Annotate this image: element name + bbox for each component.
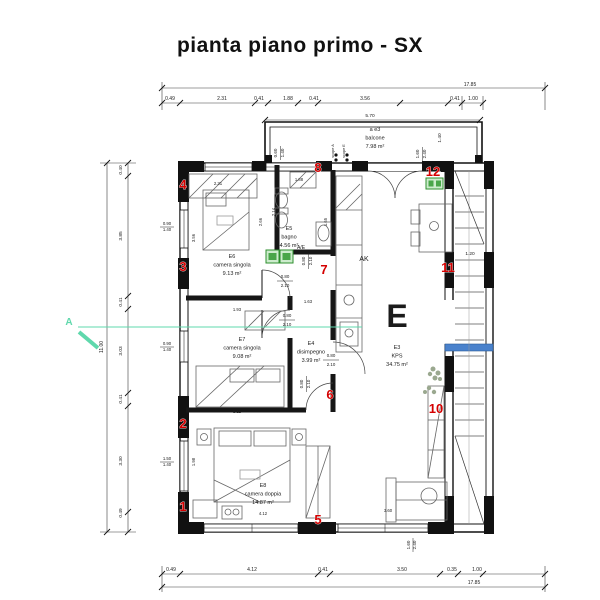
dimension-label: 1.65: [323, 217, 328, 226]
position-marker-6: 6: [326, 387, 333, 402]
dimension-label: 3.56: [191, 233, 196, 242]
dimension-label: 1.40: [437, 133, 443, 143]
dimension-label: 3.56: [360, 96, 370, 102]
room-area: 7.98 m²: [366, 144, 385, 150]
dimension-label: 1.88: [295, 177, 304, 182]
dimension-label: 0.41: [318, 567, 328, 573]
room-name: balcone: [365, 136, 384, 142]
dimension-label: 1.60: [415, 149, 420, 158]
dimension-label: 4.12: [247, 567, 257, 573]
dimension-label: 17.85: [468, 580, 481, 586]
room-id: E8: [260, 483, 267, 489]
room-name: camera doppia: [245, 492, 282, 498]
dimension-label: 0.41: [450, 96, 460, 102]
dimension-label: 0.41: [118, 394, 124, 404]
dimension-label: 1.40: [163, 462, 172, 467]
dimension-label: 1.00: [468, 96, 478, 102]
room-id: a e3: [370, 127, 381, 133]
dimension-label: 5.70: [365, 113, 375, 119]
floor-plan-canvas: pianta piano primo - SX: [0, 0, 600, 600]
scope-a-label: scope A: [331, 144, 335, 158]
position-marker-2: 2: [179, 416, 186, 431]
dimension-label: 3.30: [118, 456, 124, 466]
room-area: 9.13 m²: [223, 271, 242, 277]
dimension-label: 0.41: [118, 297, 124, 307]
dimension-label: 2.40: [422, 149, 427, 158]
dimension-label: 0.80: [301, 256, 306, 265]
ae-vent-units: [266, 178, 443, 263]
dimension-label: 2.10: [327, 362, 336, 367]
room-name: bagno: [281, 235, 296, 241]
dimension-label: 0.80: [327, 353, 336, 358]
dimension-label: 1.40: [163, 227, 172, 232]
position-marker-11: 11: [441, 260, 455, 275]
dimension-label: 3.60: [384, 508, 393, 513]
dimension-label: 0.41: [254, 96, 264, 102]
room-area: 9.08 m²: [233, 354, 252, 360]
dimension-label: 2.14: [271, 207, 276, 216]
position-marker-12: 12: [426, 164, 440, 179]
dimension-label: 0.80: [281, 274, 290, 279]
position-marker-8: 8: [314, 160, 321, 175]
dimension-label: 11.00: [99, 341, 105, 353]
position-marker-1: 1: [179, 499, 186, 514]
dimension-label: 1.60: [406, 540, 411, 549]
entrance-door: [368, 163, 422, 198]
section-line-a: [78, 327, 362, 348]
room-id: E4: [308, 341, 315, 347]
dimension-label: 3.50: [397, 567, 407, 573]
position-marker-3: 3: [179, 259, 186, 274]
stair-opening: [444, 300, 454, 344]
ae-unit-label: A/E: [297, 245, 306, 251]
dimension-label: 5.11: [233, 409, 242, 414]
dimension-label: 2.10: [306, 379, 311, 388]
dimension-label: 1.00: [472, 567, 482, 573]
dimension-label: 0.40: [118, 165, 124, 175]
dimension-label: 1.63: [304, 299, 313, 304]
dimension-label: 0.80: [283, 313, 292, 318]
floor-plan-drawing: a e3balcone7.98 m²E5bagno4.56 m²E6camera…: [0, 0, 600, 600]
plant: [423, 367, 442, 395]
dimension-label: 1.40: [280, 148, 285, 157]
dimension-label: 1.93: [233, 307, 242, 312]
dimension-label: 1.50: [163, 456, 172, 461]
room-area: 34.75 m²: [386, 362, 408, 368]
room-name: camera singola: [223, 346, 261, 352]
kitchen-label: AK: [359, 256, 369, 263]
dimension-label: 0.80: [299, 379, 304, 388]
dimension-label: 1.88: [283, 96, 293, 102]
room-area: 4.56 m²: [280, 243, 299, 249]
interior-doors: [262, 270, 365, 410]
dimension-label: 1.20: [465, 251, 475, 257]
dimension-label: 0.90: [163, 221, 172, 226]
dimension-label: 2.10: [281, 283, 290, 288]
dimension-label: 0.41: [309, 96, 319, 102]
scope-e-label: scope E: [342, 144, 346, 158]
room-id: E6: [229, 254, 236, 260]
dimension-label: 2.10: [308, 256, 313, 265]
dimension-label: 2.10: [283, 322, 292, 327]
dimension-label: 1.40: [163, 347, 172, 352]
dimension-label: 0.35: [447, 567, 457, 573]
position-marker-4: 4: [179, 177, 187, 192]
position-marker-10: 10: [429, 401, 443, 416]
dimension-label: 3.85: [118, 231, 124, 241]
dimension-label: 2.31: [217, 96, 227, 102]
room-name: disimpegno: [297, 350, 325, 356]
section-label-a: A: [65, 317, 72, 328]
position-marker-7: 7: [320, 262, 327, 277]
room-id: E3: [394, 345, 401, 351]
dimension-label: 3.03: [118, 346, 124, 356]
dimension-label: 0.60: [273, 148, 278, 157]
dimension-label: 0.49: [118, 508, 124, 518]
room-area: 14.87 m²: [252, 500, 274, 506]
room-area: 3.99 m²: [302, 358, 321, 364]
room-id: E5: [286, 226, 293, 232]
dimension-label: 2.66: [258, 217, 263, 226]
dimension-label: 2.31: [214, 181, 223, 186]
room-big-letter: E: [386, 298, 407, 334]
dimension-label: 1.98: [191, 457, 196, 466]
room-name: KPS: [391, 354, 402, 360]
dimension-label: 2.40: [412, 540, 417, 549]
dimension-label: 0.90: [163, 341, 172, 346]
position-marker-5: 5: [314, 512, 321, 527]
interior-walls: [186, 165, 333, 412]
room-name: camera singola: [213, 263, 251, 269]
dimension-label: 0.49: [165, 96, 175, 102]
dimension-label: 4.12: [259, 511, 268, 516]
dimension-label: 0.49: [166, 567, 176, 573]
dimension-label: 17.85: [464, 82, 477, 88]
room-id: E7: [239, 337, 246, 343]
